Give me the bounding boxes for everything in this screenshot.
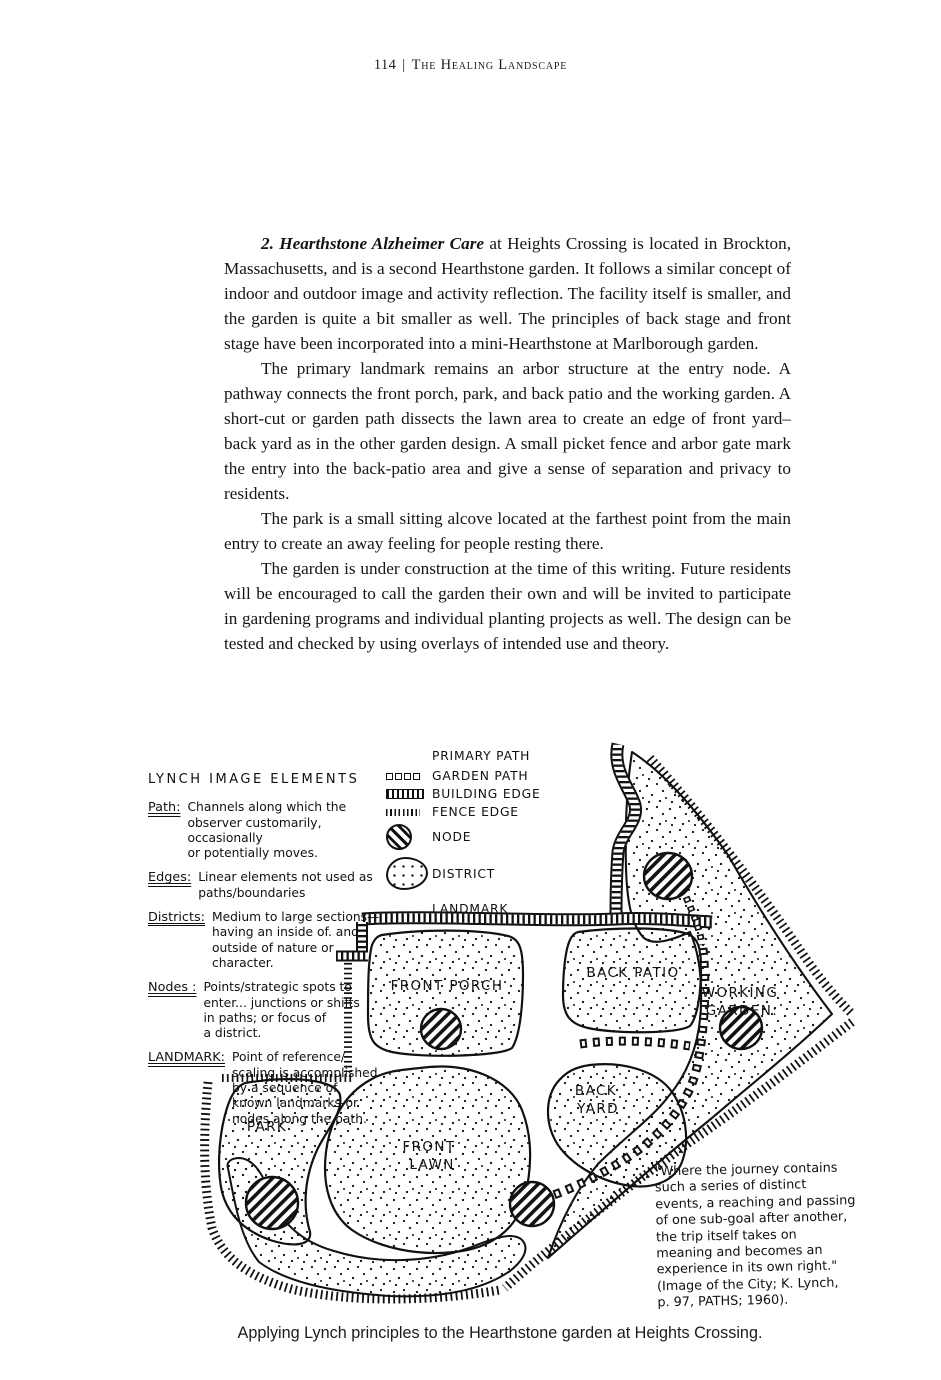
paragraph-2: The primary landmark remains an arbor st… (224, 356, 791, 506)
label-front-lawn-2: LAWN (409, 1157, 454, 1173)
paragraph-3: The park is a small sitting alcove locat… (224, 506, 791, 556)
label-working-garden-1: WORKING (702, 985, 779, 1001)
legend-line: observer customarily, occasionally (187, 816, 398, 847)
legend-line: character. (212, 956, 398, 971)
building-edge-symbol-icon (386, 789, 432, 799)
fence-edge-symbol-icon (386, 809, 432, 816)
key-label: NODE (432, 830, 471, 844)
legend-line: paths/boundaries (198, 886, 398, 901)
key-label: DISTRICT (432, 867, 495, 881)
key-row-garden-path: GARDEN PATH (386, 769, 556, 783)
legend-term-path: Path: (148, 800, 180, 861)
legend-line: known landmarks-or (232, 1096, 398, 1111)
figure-caption: Applying Lynch principles to the Hearths… (150, 1324, 850, 1343)
legend-line: in paths; or focus of (203, 1011, 398, 1026)
book-page: 114|The Healing Landscape 2. Hearthstone… (0, 0, 941, 1380)
legend-line: Medium to large sections— (212, 910, 398, 925)
label-front-porch: FRONT PORCH (391, 978, 504, 994)
legend-term-edges: Edges: (148, 870, 191, 901)
legend-line: Points/strategic spots to (203, 980, 398, 995)
label-front-lawn-1: FRONT (402, 1139, 455, 1155)
legend-title: LYNCH IMAGE ELEMENTS (148, 772, 398, 787)
key-label: FENCE EDGE (432, 805, 519, 819)
legend-term-districts: Districts: (148, 910, 205, 971)
paragraph-1-lead: 2. Hearthstone Alzheimer Care (261, 234, 484, 253)
label-back-patio: BACK PATIO (586, 965, 679, 981)
key-row-landmark: LANDMARK (386, 902, 556, 916)
legend-entry-nodes: Nodes : Points/strategic spots to enter.… (148, 980, 398, 1041)
key-row-fence-edge: FENCE EDGE (386, 805, 556, 819)
key-row-node: NODE (386, 824, 556, 850)
legend-line: Linear elements not used as (198, 870, 398, 885)
book-title: The Healing Landscape (412, 57, 568, 73)
node-symbol-icon (386, 824, 432, 850)
body-text: 2. Hearthstone Alzheimer Care at Heights… (224, 231, 791, 656)
page-header: 114|The Healing Landscape (0, 57, 941, 74)
key-row-district: DISTRICT (386, 857, 556, 890)
label-back-yard-2: YARD (576, 1101, 619, 1117)
lynch-legend: LYNCH IMAGE ELEMENTS Path: Channels alon… (148, 772, 398, 1136)
legend-line: having an inside of. and (212, 925, 398, 940)
page-number: 114 (374, 57, 396, 73)
paragraph-4: The garden is under construction at the … (224, 556, 791, 656)
header-separator: | (396, 57, 411, 73)
legend-line: outside of nature or (212, 941, 398, 956)
key-row-primary-path: PRIMARY PATH (386, 749, 556, 763)
key-label: PRIMARY PATH (432, 749, 530, 763)
garden-path-symbol-icon (386, 773, 432, 780)
legend-line: Point of reference/ (232, 1050, 398, 1065)
legend-term-nodes: Nodes : (148, 980, 196, 1041)
node-park (246, 1177, 298, 1229)
legend-line: scaling is accomplished (232, 1066, 398, 1081)
legend-term-landmark: LANDMARK: (148, 1050, 225, 1126)
legend-entry-districts: Districts: Medium to large sections— hav… (148, 910, 398, 971)
legend-line: a district. (203, 1026, 398, 1041)
legend-line: or potentially moves. (187, 846, 398, 861)
key-row-building-edge: BUILDING EDGE (386, 787, 556, 801)
legend-entry-landmark: LANDMARK: Point of reference/ scaling is… (148, 1050, 398, 1126)
district-symbol-icon (386, 857, 432, 890)
symbol-key: PRIMARY PATH GARDEN PATH BUILDING EDGE F… (386, 749, 556, 920)
legend-entry-edges: Edges: Linear elements not used as paths… (148, 870, 398, 901)
legend-line: nodes along the path. (232, 1112, 398, 1127)
key-label: LANDMARK (432, 902, 508, 916)
key-label: GARDEN PATH (432, 769, 528, 783)
lynch-quote: "Where the journey contains such a serie… (654, 1160, 883, 1312)
key-label: BUILDING EDGE (432, 787, 541, 801)
label-back-yard-1: BACK (575, 1083, 617, 1099)
label-working-garden-2: GARDEN: (706, 1003, 778, 1019)
legend-line: by a sequence of (232, 1081, 398, 1096)
node-entry-landmark (644, 853, 692, 899)
node-front-porch (421, 1009, 461, 1049)
node-front-lawn (510, 1182, 554, 1226)
legend-line: enter... junctions or shifts (203, 996, 398, 1011)
legend-entry-path: Path: Channels along which the observer … (148, 800, 398, 861)
paragraph-1: 2. Hearthstone Alzheimer Care at Heights… (224, 231, 791, 356)
legend-line: Channels along which the (187, 800, 398, 815)
